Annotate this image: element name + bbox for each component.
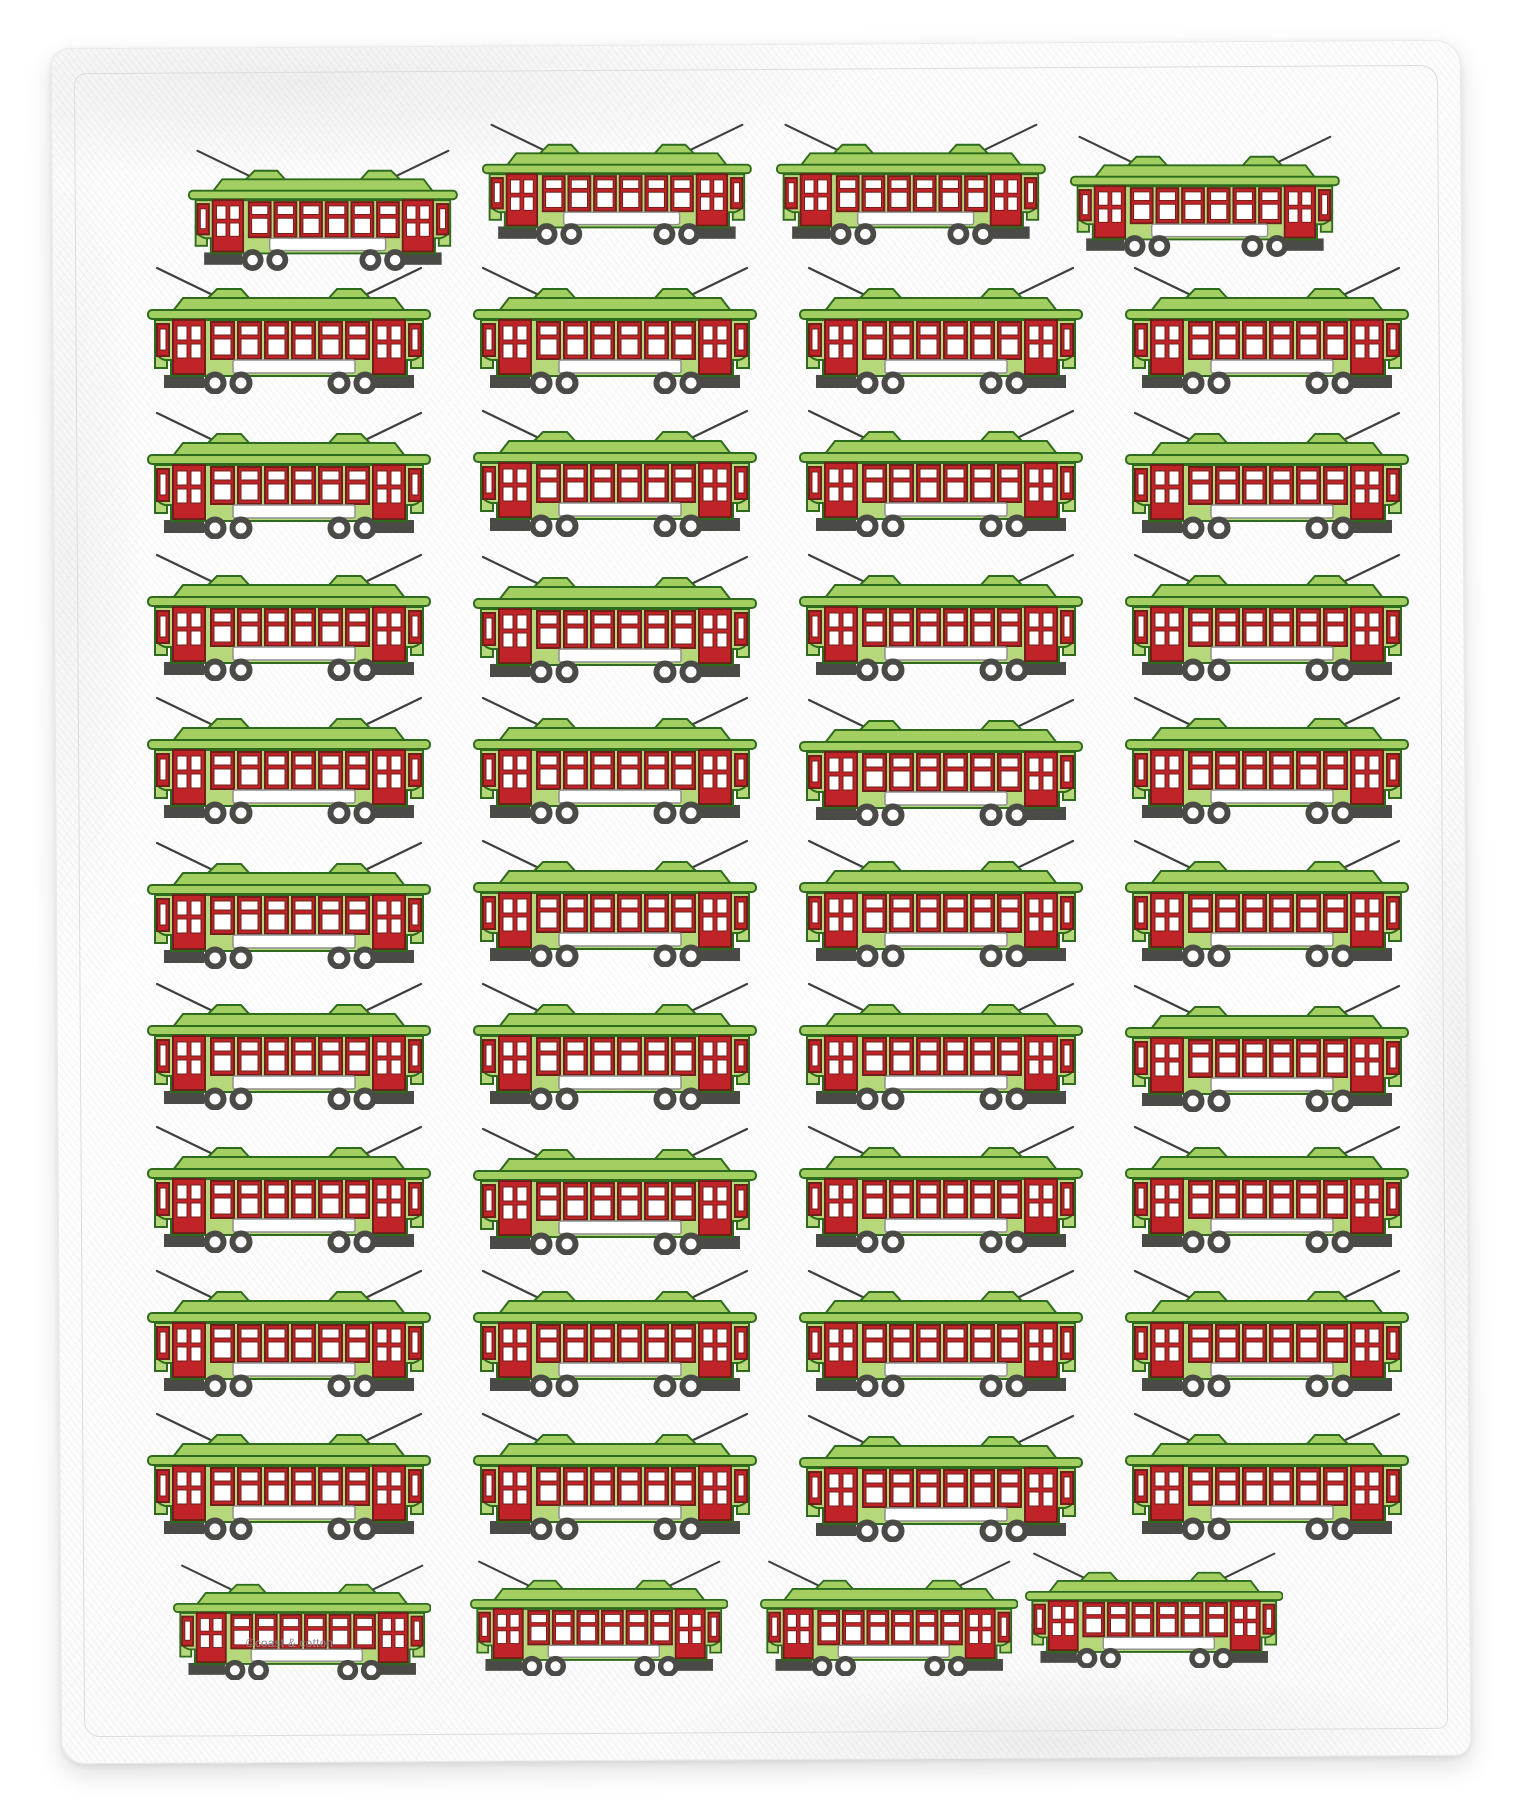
streetcar-icon [147, 1410, 431, 1540]
streetcar-icon [1125, 982, 1409, 1112]
streetcar-icon [1125, 1123, 1409, 1253]
streetcar-icon [147, 1123, 431, 1253]
streetcar-icon [147, 839, 431, 969]
streetcar-icon [1025, 1550, 1283, 1668]
streetcar-icon [147, 980, 431, 1110]
streetcar-icon [147, 1267, 431, 1397]
streetcar-icon [799, 837, 1083, 967]
streetcar-icon [470, 1558, 728, 1676]
streetcar-pattern [0, 0, 1530, 1804]
streetcar-icon [188, 147, 458, 271]
streetcar-icon [147, 264, 431, 394]
streetcar-icon [799, 1123, 1083, 1253]
streetcar-icon [1125, 837, 1409, 967]
streetcar-icon [760, 1558, 1018, 1676]
streetcar-icon [473, 1125, 757, 1255]
streetcar-icon [1125, 694, 1409, 824]
streetcar-icon [473, 407, 757, 537]
streetcar-icon [799, 696, 1083, 826]
streetcar-icon [473, 837, 757, 967]
streetcar-icon [473, 980, 757, 1110]
streetcar-icon [799, 264, 1083, 394]
streetcar-icon [147, 551, 431, 681]
streetcar-icon [473, 553, 757, 683]
streetcar-icon [473, 694, 757, 824]
streetcar-icon [1125, 409, 1409, 539]
streetcar-icon [799, 1412, 1083, 1542]
streetcar-icon [1125, 551, 1409, 681]
streetcar-icon [1125, 1267, 1409, 1397]
streetcar-icon [1125, 264, 1409, 394]
streetcar-icon [147, 694, 431, 824]
streetcar-icon [799, 1267, 1083, 1397]
streetcar-icon [1070, 133, 1340, 257]
streetcar-icon [473, 1410, 757, 1540]
streetcar-icon [173, 1562, 431, 1680]
product-photo: ©coast & cotton [0, 0, 1530, 1804]
streetcar-icon [473, 1267, 757, 1397]
brand-copyright-text: ©coast & cotton [246, 1638, 333, 1650]
streetcar-icon [473, 264, 757, 394]
streetcar-icon [776, 121, 1046, 245]
streetcar-icon [147, 409, 431, 539]
streetcar-icon [799, 980, 1083, 1110]
streetcar-icon [1125, 1410, 1409, 1540]
streetcar-icon [482, 121, 752, 245]
streetcar-icon [799, 551, 1083, 681]
streetcar-icon [799, 407, 1083, 537]
